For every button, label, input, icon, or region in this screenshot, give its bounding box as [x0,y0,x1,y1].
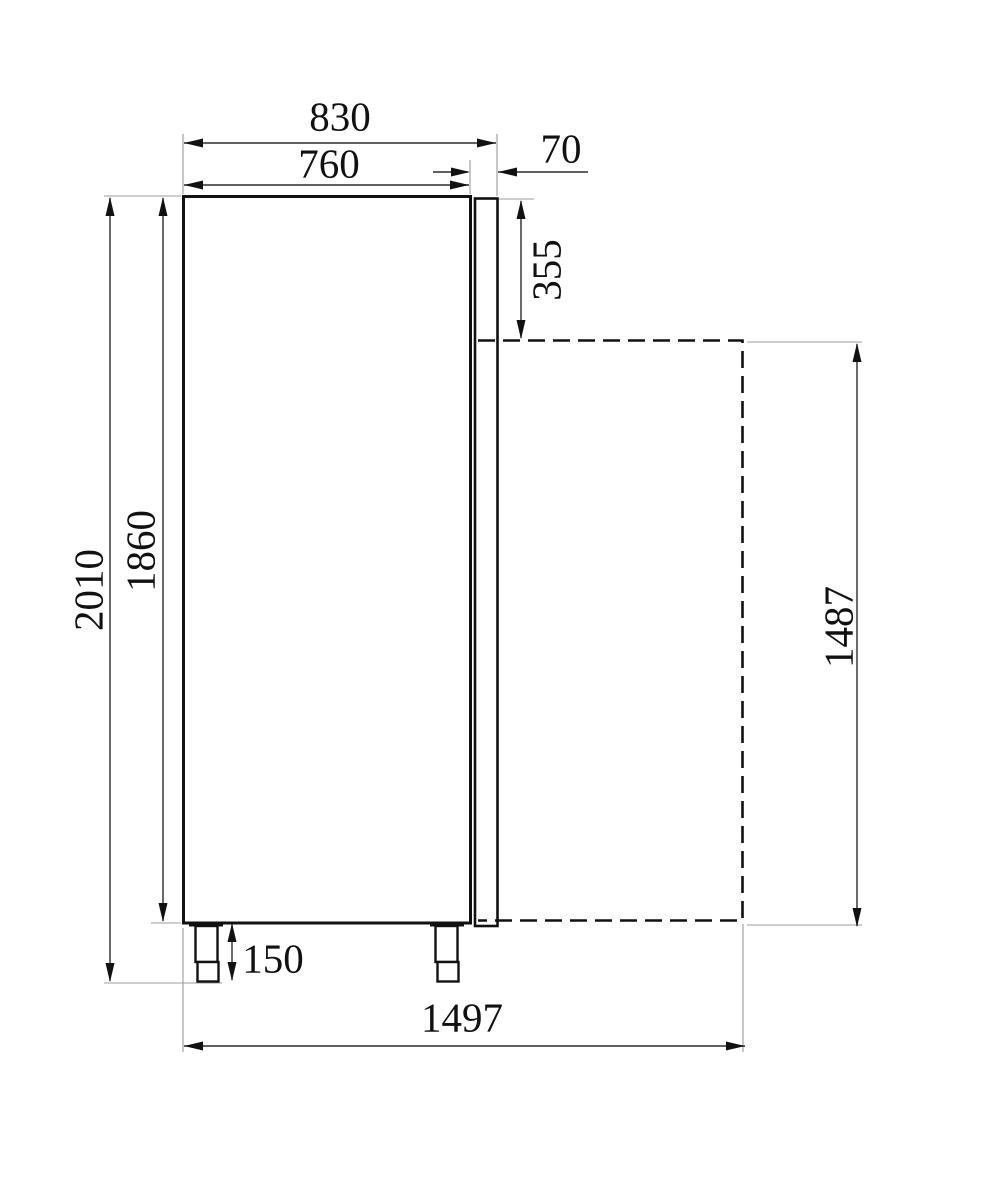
dim-door-thickness-label: 70 [541,129,582,170]
arrow-760-right [450,181,469,190]
arrow-1860-bottom [159,903,168,922]
arrow-70-outside-right [498,168,517,177]
arrow-150-top [228,923,237,942]
arrow-355-top [517,200,526,219]
left-foot-lower [198,962,219,982]
arrow-355-bottom [517,320,526,339]
dim-door-height-label: 1487 [819,586,860,668]
arrow-1487-top [853,343,862,362]
arrow-760-left [184,181,203,190]
dim-body-depth-label: 760 [298,144,360,185]
technical-drawing-canvas: 830 760 70 355 2010 1860 150 1497 1487 [0,0,998,1200]
cabinet-body-outline [184,197,471,924]
dim-body-height-label: 1860 [121,510,162,592]
cabinet-outline [184,197,743,927]
arrow-830-left [184,139,203,148]
closed-door-edge-outline [475,199,498,927]
dim-feet-height-label: 150 [242,939,304,980]
arrow-2010-bottom [106,963,115,982]
arrow-1860-top [159,197,168,216]
arrow-1497-right [726,1042,745,1051]
right-foot-lower [438,962,459,982]
dim-total-depth-label: 830 [309,97,371,138]
arrow-1487-bottom [853,908,862,927]
arrow-150-bottom [228,962,237,981]
arrow-1497-left [184,1042,203,1051]
dim-total-height-label: 2010 [69,549,110,631]
dim-depth-door-open-label: 1497 [421,998,503,1039]
arrow-830-right [477,139,496,148]
arrow-70-outside-left [451,168,470,177]
right-foot-upper [436,926,458,962]
open-door-dashed-outline [478,341,743,921]
arrow-2010-top [106,197,115,216]
dim-door-top-offset-label: 355 [527,239,568,301]
left-foot-upper [196,926,218,962]
